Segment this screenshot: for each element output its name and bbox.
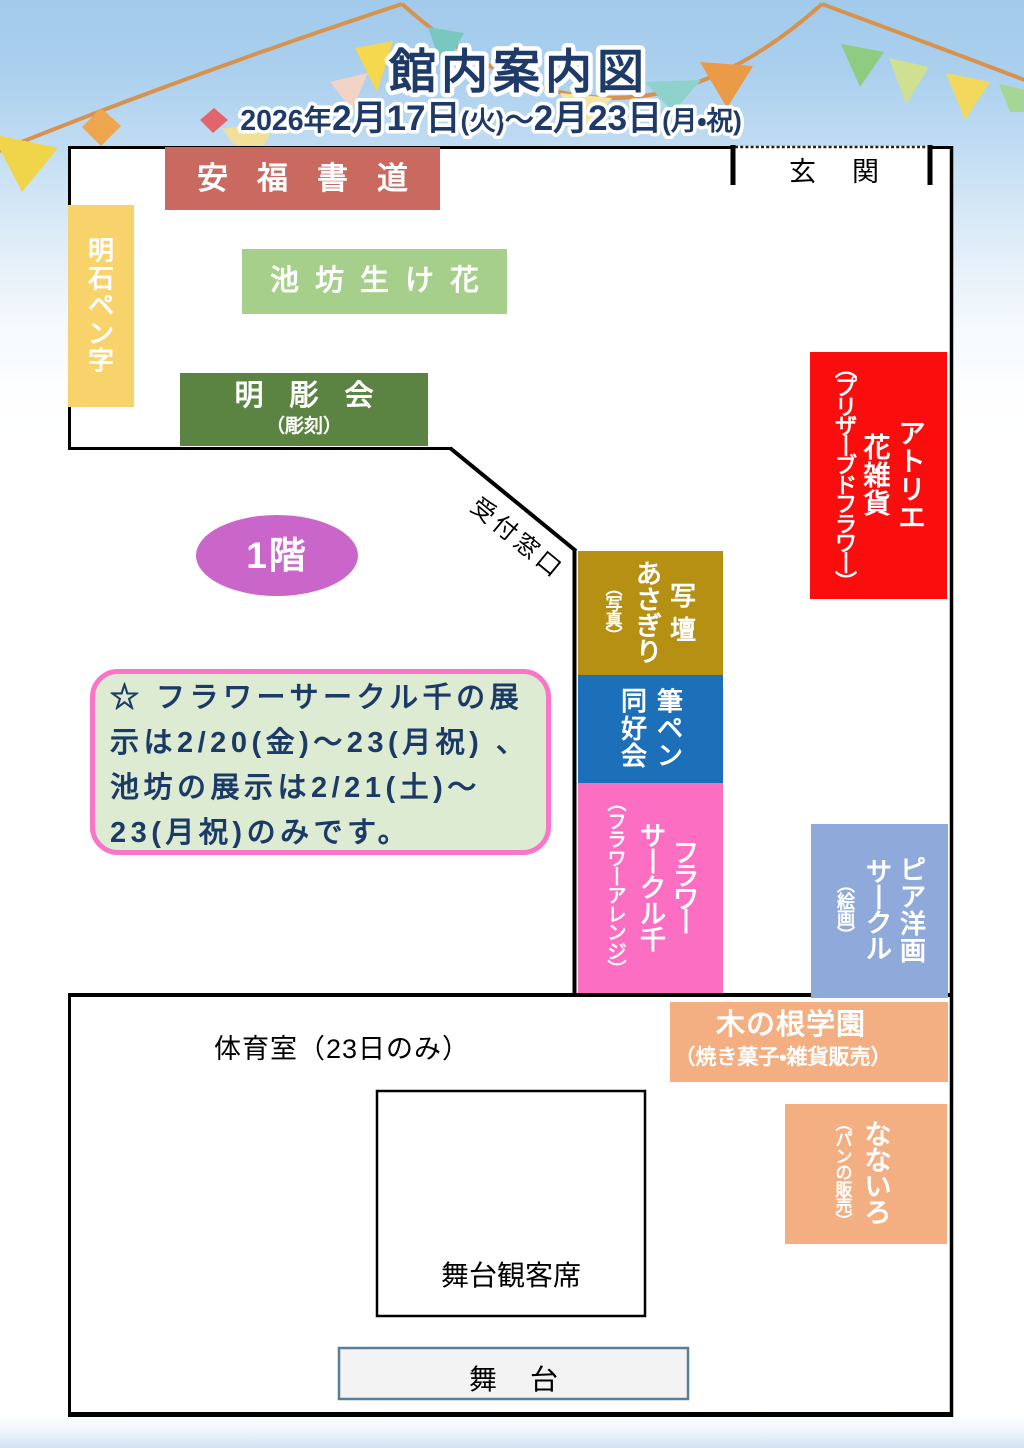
svg-text:館内案内図: 館内案内図 [388,45,649,98]
